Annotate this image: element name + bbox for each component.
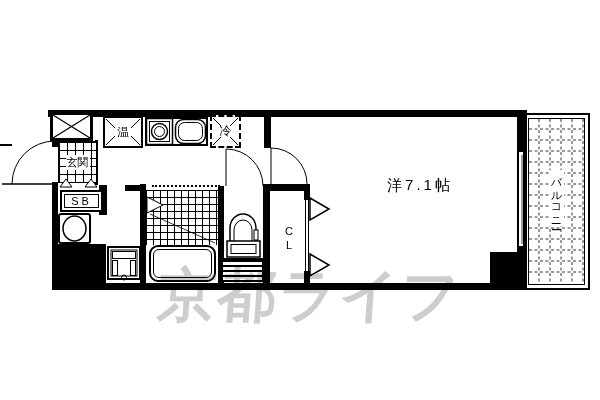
bathroom-curtain-dotted-line (152, 185, 220, 188)
toilet-icon (227, 214, 260, 257)
closet-label-text: CL (283, 225, 295, 253)
pillar-bottom-right (490, 252, 517, 283)
shoe-box-label: SB (71, 195, 92, 207)
toilet-door-icon (226, 149, 263, 186)
bathroom-tile-floor (146, 190, 218, 245)
wall-block-bottom-left (58, 244, 106, 283)
main-room-label-text: 洋7.1帖 (387, 176, 453, 195)
wall-kitchen-hall (264, 110, 271, 148)
closet-label: CL (281, 218, 297, 260)
refrigerator-box: 冷 (210, 115, 241, 148)
main-room-label: 洋7.1帖 (340, 176, 500, 194)
entrance-door-icon (2, 141, 55, 184)
exterior-stub-line (0, 144, 12, 146)
wall-closet-right-top (304, 184, 310, 200)
watermark-text: 京都ライフ (156, 262, 465, 327)
kitchen-counter (145, 117, 208, 146)
room-door-icon (271, 148, 307, 184)
shaft-box (50, 112, 93, 141)
shoe-box: SB (60, 190, 103, 212)
closet-door-track (305, 200, 309, 271)
water-heater-box: 温 (103, 116, 143, 148)
wall-kitchen-washroom-stub (125, 185, 146, 191)
water-heater-label: 温 (116, 124, 130, 141)
wash-basin (58, 213, 91, 244)
watermark: 京都ライフ (156, 266, 464, 324)
entrance-label: 玄関 (58, 155, 97, 170)
refrigerator-label: 冷 (219, 123, 233, 140)
washing-machine (107, 246, 141, 280)
floor-plan: 玄関 SB 温 冷 CL 洋7.1帖 バルコニー (0, 0, 600, 400)
entrance-label-text: 玄関 (66, 155, 90, 170)
balcony-label-text: バルコニー (549, 170, 564, 225)
balcony-label: バルコニー (548, 150, 564, 246)
